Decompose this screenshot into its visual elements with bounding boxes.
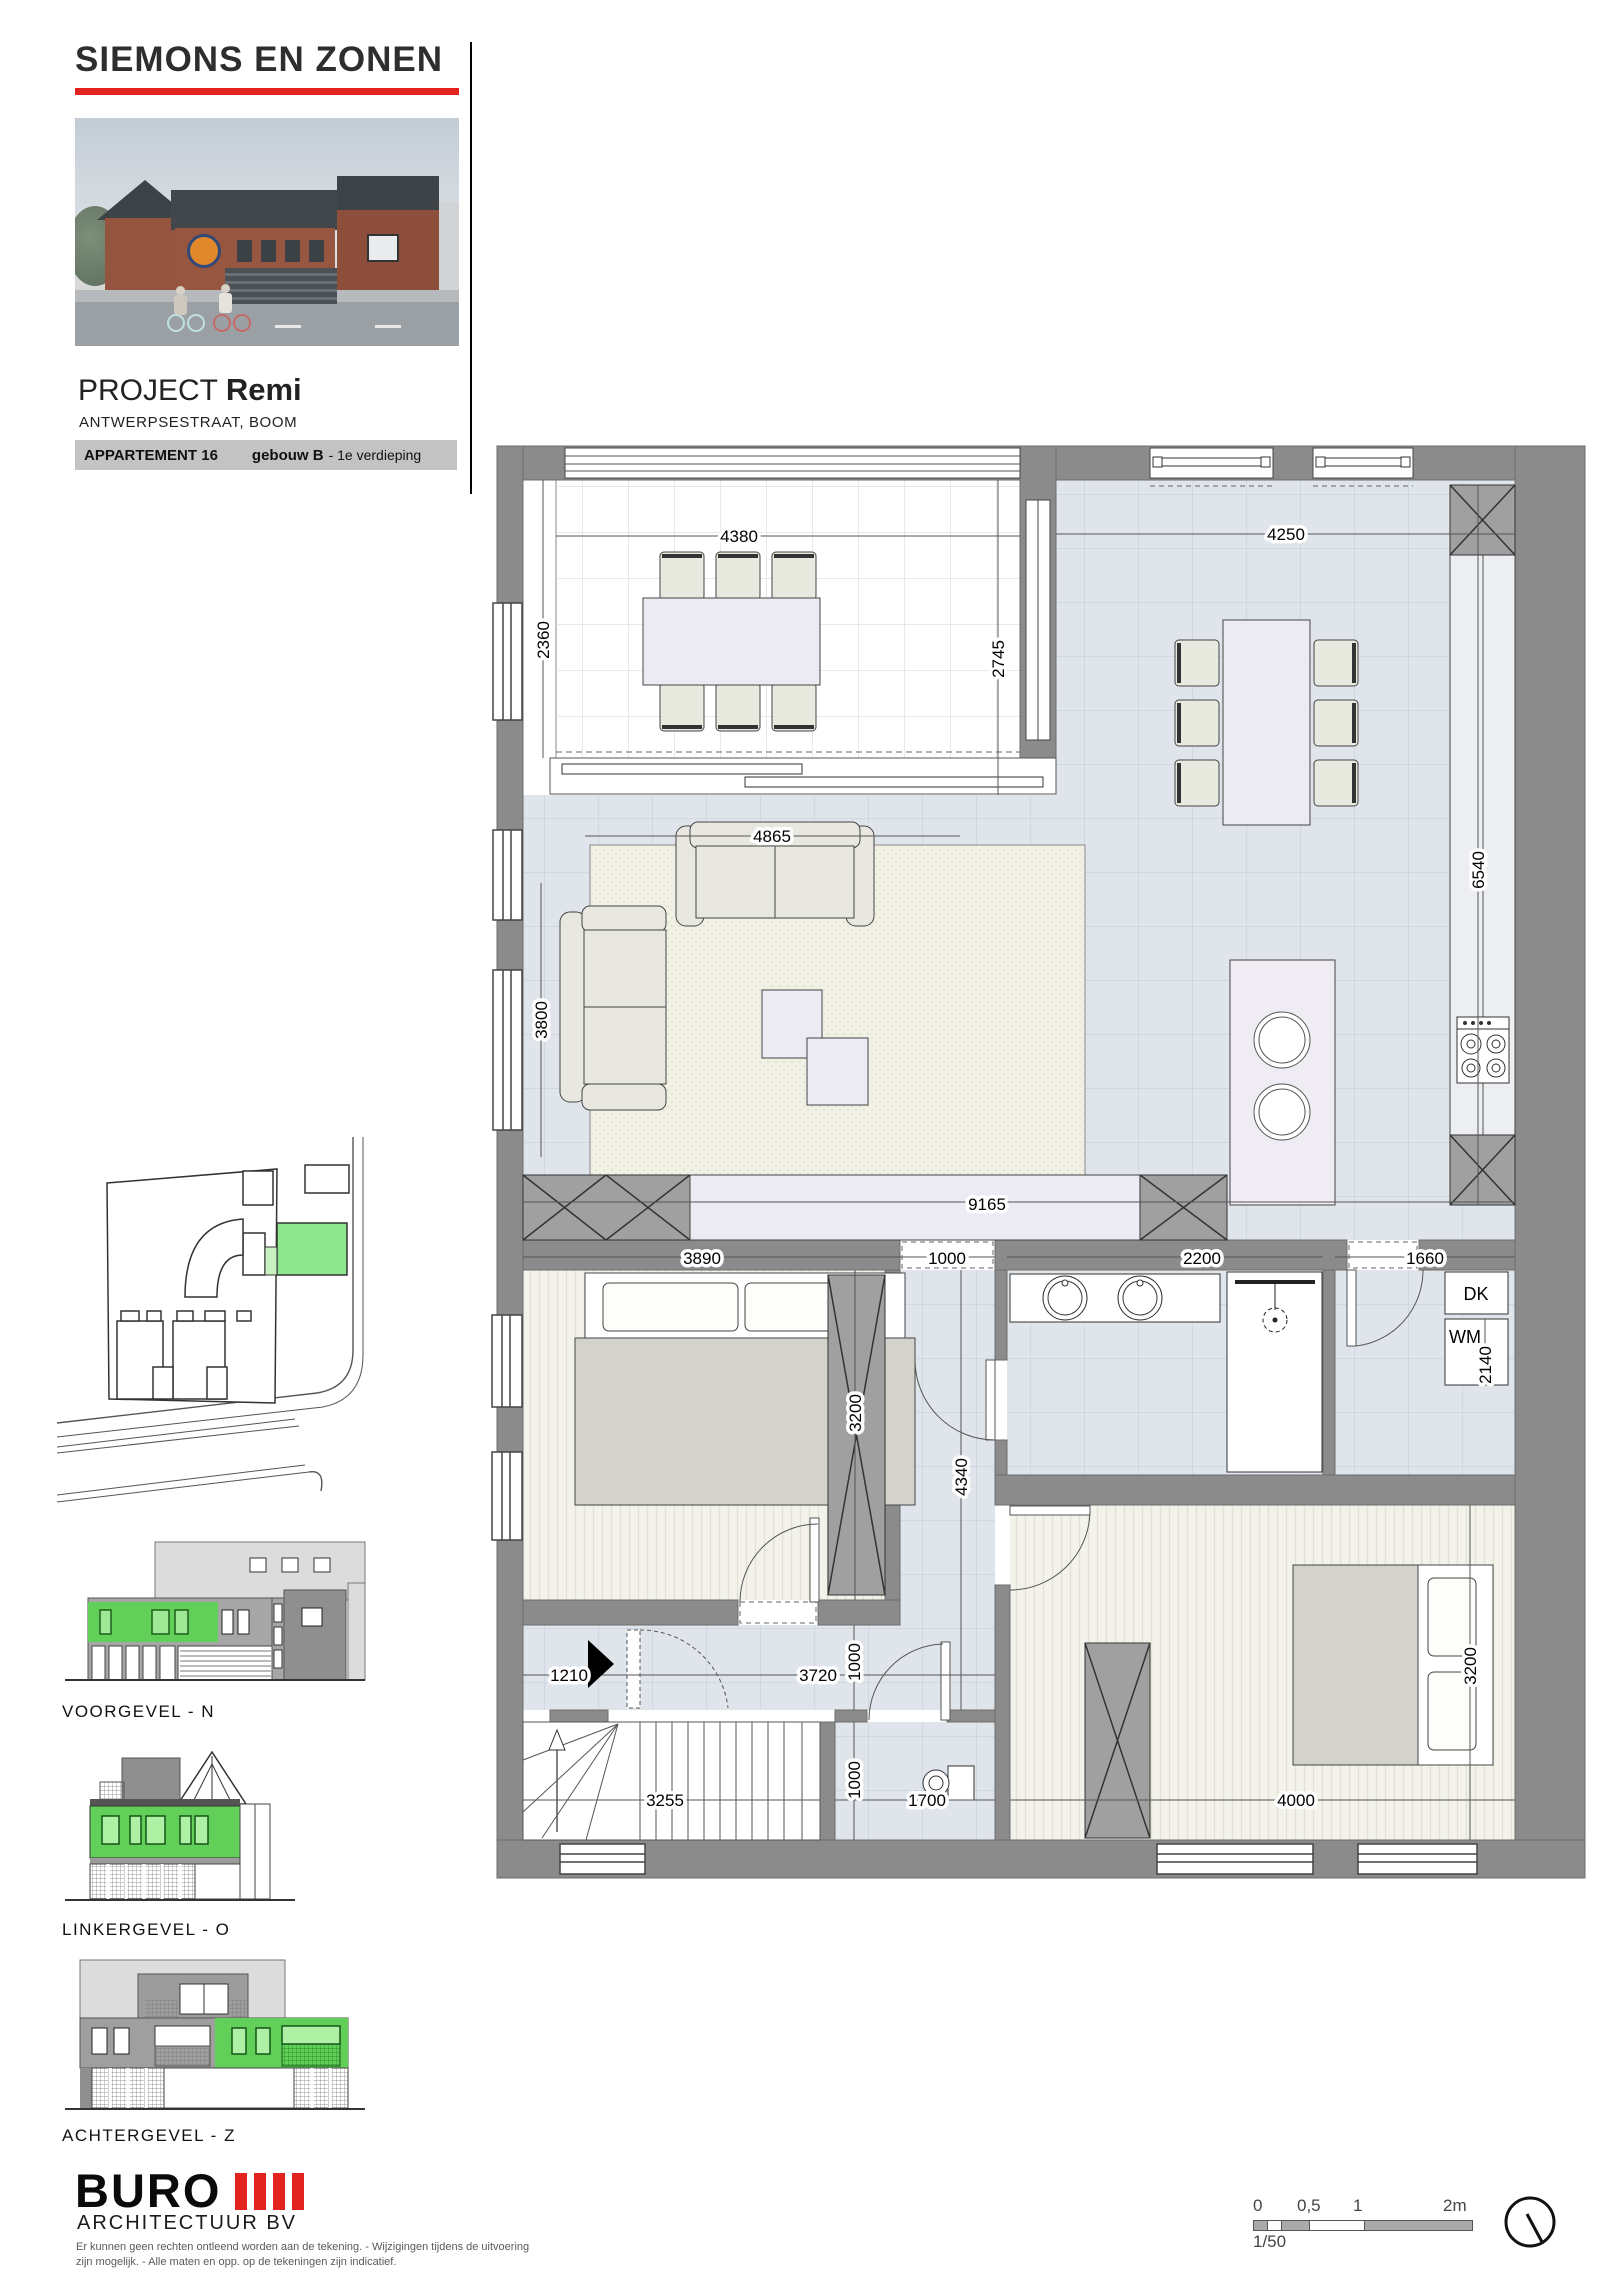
bed-2-blanket <box>1293 1565 1418 1765</box>
photo-cyclist <box>174 295 187 315</box>
company-logo-text: SIEMONS EN ZONEN <box>75 40 443 80</box>
ev-back-windows <box>250 1558 330 1572</box>
stove <box>1457 1017 1509 1083</box>
ev-ground-piers <box>92 1646 175 1680</box>
photo-garage-door <box>225 268 337 304</box>
label-washer: WM <box>1449 1327 1481 1347</box>
photo-bike-wheel <box>233 314 251 332</box>
dim-slaapkamer2-breedte: 4000 <box>1277 1791 1315 1810</box>
scale-ratio: 1/50 <box>1253 2232 1286 2252</box>
dim-leefruimte-breedte: 9165 <box>968 1195 1006 1214</box>
photo-sign <box>187 234 221 268</box>
coffee-table-2 <box>807 1038 868 1105</box>
dim-hal-diepte: 4340 <box>952 1458 971 1496</box>
plan-sheet: { "header": { "company": "SIEMONS EN ZON… <box>0 0 1620 2292</box>
elevation-achtergevel <box>60 1952 370 2120</box>
ev-far-right <box>348 1583 365 1680</box>
dining-set <box>1175 620 1358 825</box>
dim-zithoek-breedte: 4865 <box>753 827 791 846</box>
elevation-label-voorgevel: VOORGEVEL - N <box>62 1702 215 1722</box>
photo-cyclist <box>176 286 185 295</box>
site-highlight-tab <box>265 1247 277 1275</box>
dim-trap-breedte: 3255 <box>646 1791 684 1810</box>
av-hatch-2 <box>230 2000 246 2018</box>
av-edge-col <box>80 2068 92 2108</box>
dim-badkamer-breedte: 2200 <box>1183 1249 1221 1268</box>
bed-2-pillow <box>1428 1578 1476 1656</box>
kitchen-island <box>1230 960 1335 1205</box>
dim-terras-rechts: 2745 <box>989 640 1008 678</box>
dim-gang-diepte: 1000 <box>845 1643 864 1681</box>
architect-subtitle: ARCHITECTUUR BV <box>77 2212 297 2235</box>
ev-right-window <box>302 1608 322 1626</box>
living-room <box>560 822 1085 1200</box>
vanity-counter <box>1010 1274 1220 1322</box>
apartment-banner: APPARTEMENT 16 gebouw B - 1e verdieping <box>75 440 457 470</box>
av-wide-window <box>155 2026 210 2046</box>
photo-cyclist <box>219 293 232 313</box>
photo-window <box>309 240 324 262</box>
av-piers-right <box>294 2068 348 2108</box>
photo-road <box>75 302 459 346</box>
scale-tick-1: 1 <box>1353 2196 1362 2216</box>
disclaimer-line-2: zijn mogelijk. - Alle maten en opp. op d… <box>76 2255 529 2270</box>
dim-gang-breedte: 3720 <box>799 1666 837 1685</box>
photo-roof-right <box>337 176 439 210</box>
dim-wc-breedte: 1000 <box>845 1761 864 1799</box>
floor-label: - 1e verdieping <box>329 447 422 463</box>
dim-keuken-diepte: 6540 <box>1469 851 1488 889</box>
site-plan <box>55 1135 365 1535</box>
dim-zithoek-diepte: 3800 <box>532 1001 551 1039</box>
elevation-label-achtergevel: ACHTERGEVEL - Z <box>62 2126 236 2146</box>
terrace-dining-set <box>643 552 820 731</box>
dim-terras-breedte: 4380 <box>720 527 758 546</box>
site-highlighted-unit <box>277 1223 347 1275</box>
lv-ground-bay <box>195 1864 240 1899</box>
dim-berging-diepte: 2140 <box>1476 1346 1495 1384</box>
project-render-photo <box>75 118 459 346</box>
lv-back-volume <box>122 1758 180 1804</box>
kitchen-counter <box>1450 485 1515 1205</box>
disclaimer-line-1: Er kunnen geen rechten ontleend worden a… <box>76 2240 529 2255</box>
av-wide-hatch <box>155 2046 210 2066</box>
architect-logo-bars-icon <box>235 2173 311 2210</box>
photo-road-marking <box>375 325 401 328</box>
building-label: gebouw B <box>252 447 324 464</box>
photo-roof-center <box>171 190 339 230</box>
site-plot <box>107 1165 349 1403</box>
elevation-linkergevel <box>60 1742 300 1914</box>
dining-table <box>1223 620 1310 825</box>
dim-eethoek-breedte: 4250 <box>1267 525 1305 544</box>
project-address: ANTWERPSESTRAAT, BOOM <box>79 414 297 431</box>
photo-bike-wheel <box>213 314 231 332</box>
terrace-sliding-door <box>550 752 1056 794</box>
label-dryer: DK <box>1463 1284 1488 1304</box>
scale-bar-graphic <box>1253 2220 1473 2231</box>
photo-window-right <box>367 234 399 262</box>
architect-logo: BURO <box>75 2172 311 2210</box>
apartment-number: APPARTEMENT 16 <box>84 447 218 464</box>
photo-bike-wheel <box>167 314 185 332</box>
toilet-tank <box>948 1766 974 1800</box>
dim-slaapkamer1-diepte: 3200 <box>846 1394 865 1432</box>
logo-red-rule <box>75 88 459 95</box>
photo-window <box>237 240 252 262</box>
av-hatch-1 <box>145 2000 178 2018</box>
photo-road-marking <box>275 325 301 328</box>
elevation-voorgevel <box>60 1528 370 1696</box>
architect-logo-text: BURO <box>75 2172 221 2210</box>
terrace-table <box>643 598 820 685</box>
lv-band-bottom <box>90 1858 240 1864</box>
ev-slots <box>274 1604 282 1668</box>
north-compass-icon <box>1500 2192 1560 2252</box>
disclaimer: Er kunnen geen rechten ontleend worden a… <box>76 2240 529 2270</box>
dim-inkom-breedte: 1210 <box>550 1666 588 1685</box>
lv-band-edge <box>90 1799 240 1806</box>
photo-cyclist <box>221 284 230 293</box>
scale-tick-05: 0,5 <box>1297 2196 1321 2216</box>
dim-slaapkamer1-breedte: 3890 <box>683 1249 721 1268</box>
scale-tick-2m: 2m <box>1443 2196 1467 2216</box>
staircase <box>523 1722 820 1840</box>
photo-window <box>285 240 300 262</box>
project-title: PROJECT Remi <box>78 372 302 408</box>
header-divider <box>470 42 472 494</box>
scale-bar: 0 0,5 1 2m 1/50 <box>1253 2196 1493 2256</box>
dim-slaapkamer2-diepte: 3200 <box>1461 1647 1480 1685</box>
photo-bike-wheel <box>187 314 205 332</box>
floor-plan: 4380 4250 2360 2745 6540 4865 3800 9165 … <box>490 440 1590 1880</box>
photo-window <box>261 240 276 262</box>
cabinet-row <box>523 1175 1227 1240</box>
dim-wc-diepte: 1700 <box>908 1791 946 1810</box>
av-garage-opening <box>164 2068 294 2108</box>
av-green-hatch <box>282 2044 340 2066</box>
project-label: PROJECT <box>78 374 217 407</box>
project-name: Remi <box>226 372 302 407</box>
sofa-vertical <box>560 906 666 1110</box>
elevation-label-linkergevel: LINKERGEVEL - O <box>62 1920 230 1940</box>
ev-right-volume <box>284 1590 346 1680</box>
dim-hal-breedte: 1000 <box>928 1249 966 1268</box>
scale-tick-0: 0 <box>1253 2196 1262 2216</box>
bed-1-pillow <box>603 1283 738 1331</box>
dim-berging-breedte: 1660 <box>1406 1249 1444 1268</box>
dim-terras-diepte: 2360 <box>534 621 553 659</box>
